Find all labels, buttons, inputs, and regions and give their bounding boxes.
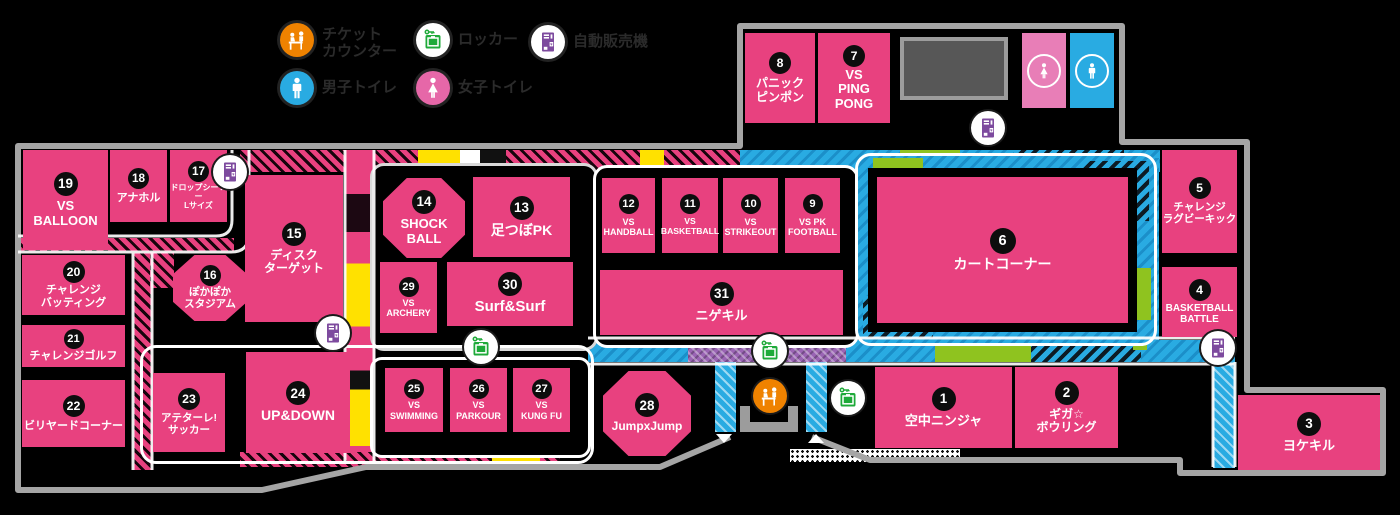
attraction-label: VS ARCHERY [386,298,430,318]
attraction-label: ニゲキル [695,309,747,324]
attraction-label: ディスク ターゲット [264,249,324,276]
attraction-box-25: 25VS SWIMMING [385,368,443,432]
attraction-number: 1 [932,387,956,411]
attraction-label: JumpxJump [612,420,683,433]
attraction-box-4: 4BASKETBALL BATTLE [1162,267,1237,337]
attraction-box-29: 29VS ARCHERY [380,262,437,333]
attraction-number: 2 [1055,381,1079,405]
ticket-counter-icon [280,23,314,57]
attraction-label: VS SWIMMING [390,400,438,420]
legend-item-vending: 自動販売機 [531,25,648,59]
attraction-box-27: 27VS KUNG FU [513,368,570,432]
attraction-box-28: 28JumpxJump [603,371,691,456]
legend-item-womens-toilet: 女子トイレ [416,71,533,105]
attraction-box-21: 21チャレンジゴルフ [22,325,125,367]
attraction-number: 4 [1189,279,1211,301]
map-vending-icon-1 [213,155,247,189]
attraction-box-26: 26VS PARKOUR [450,368,507,432]
attraction-label: 空中ニンジャ [905,414,982,429]
attraction-box-15: 15ディスク ターゲット [245,175,343,322]
attraction-label: チャレンジ ラグビーキック [1163,202,1237,226]
legend-item-locker: ロッカー [416,23,518,57]
attraction-label: 足つぼPK [491,223,552,239]
attraction-box-8: 8パニック ピンポン [745,33,815,123]
attraction-number: 29 [399,277,419,297]
attraction-box-31: 31ニゲキル [600,270,843,335]
vending-machine-icon [531,25,565,59]
map-vending-icon-3 [971,111,1005,145]
attraction-label: ギガ☆ ボウリング [1036,408,1096,435]
attraction-label: チャレンジゴルフ [30,350,118,362]
legend-label: 自動販売機 [573,25,648,50]
attraction-label: チャレンジ バッティング [41,284,106,309]
legend-label: ロッカー [458,23,518,48]
attraction-number: 20 [63,261,85,283]
legend-label: 男子トイレ [322,71,397,96]
deco-entrance-path-right [806,362,827,432]
screen-area [900,37,1008,100]
attraction-box-30: 30Surf&Surf [447,262,573,326]
attraction-label: VS PK FOOTBALL [788,217,837,237]
attraction-number: 24 [286,381,310,405]
attraction-number: 12 [619,194,639,214]
attraction-box-18: 18アナホル [110,150,167,222]
attraction-box-5: 5チャレンジ ラグビーキック [1162,150,1237,253]
attraction-label: VS BALLOON [33,199,97,228]
attraction-box-1: 1空中ニンジャ [875,367,1012,448]
entrance-up-arrow [808,434,824,443]
attraction-box-24: 24UP&DOWN [246,352,350,453]
attraction-box-16: 16ぽかぽか スタジアム [173,255,247,321]
attraction-number: 14 [412,190,436,214]
attraction-label: UP&DOWN [261,408,335,424]
map-vending-icon-2 [316,316,350,350]
attraction-label: ビリヤードコーナー [24,420,123,432]
attraction-label: BASKETBALL BATTLE [1166,303,1234,325]
deco-patch [150,252,174,288]
attraction-box-6: 6カートコーナー [868,168,1137,332]
attraction-number: 26 [469,379,489,399]
map-locker-icon-2 [831,381,865,415]
attraction-box-19: 19VS BALLOON [23,150,108,250]
attraction-number: 9 [803,194,823,214]
attraction-number: 21 [64,329,84,349]
womens-toilet-icon [1027,54,1061,88]
vs-park-floor-map: チケット カウンター ロッカー 自動販売機 男子トイレ 女子トイレ [0,0,1400,515]
legend-label: 女子トイレ [458,71,533,96]
attraction-number: 6 [990,228,1016,254]
attraction-number: 18 [128,168,149,189]
attraction-box-7: 7VS PING PONG [818,33,890,123]
attraction-number: 15 [282,222,306,246]
attraction-label: ヨケキル [1283,439,1335,454]
attraction-box-13: 13足つぼPK [473,177,570,257]
map-locker-icon-3 [464,330,498,364]
legend-label: チケット カウンター [322,23,397,61]
attraction-number: 23 [178,388,200,410]
mens-toilet-stall [1070,33,1114,108]
attraction-number: 13 [510,196,534,220]
attraction-number: 5 [1189,177,1211,199]
attraction-label: VS HANDBALL [604,217,654,237]
attraction-number: 27 [532,379,552,399]
map-vending-icon-4 [1201,331,1235,365]
womens-toilet-stall [1022,33,1066,108]
attraction-label: ぽかぽか スタジアム [184,287,236,311]
attraction-label: Surf&Surf [475,299,546,316]
attraction-number: 25 [404,379,424,399]
deco-path-right-vertical [1213,362,1235,468]
attraction-number: 3 [1297,412,1321,436]
attraction-number: 17 [188,161,209,182]
attraction-box-2: 2ギガ☆ ボウリング [1015,367,1118,448]
attraction-label: VS PING PONG [835,68,873,112]
attraction-box-20: 20チャレンジ バッティング [22,255,125,315]
attraction-label: SHOCK BALL [401,217,448,246]
attraction-label: アテターレ! サッカー [161,413,217,437]
attraction-number: 22 [63,395,85,417]
attraction-box-22: 22ビリヤードコーナー [22,380,125,447]
mens-toilet-icon [1075,54,1109,88]
attraction-box-14: 14SHOCK BALL [383,178,465,258]
attraction-box-11: 11VS BASKETBALL [662,178,718,253]
legend-item-mens-toilet: 男子トイレ [280,71,397,105]
deco-entrance-path-left [715,362,736,432]
attraction-number: 31 [710,282,734,306]
attraction-number: 11 [680,194,700,214]
attraction-label: パニック ピンポン [756,77,804,104]
womens-toilet-icon [416,71,450,105]
attraction-number: 28 [635,393,659,417]
locker-icon [416,23,450,57]
attraction-number: 19 [54,172,78,196]
attraction-box-12: 12VS HANDBALL [602,178,655,253]
attraction-box-23: 23アテターレ! サッカー [153,373,225,452]
attraction-label: アナホル [117,192,161,204]
attraction-label: VS KUNG FU [521,400,562,420]
attraction-number: 8 [769,52,791,74]
attraction-number: 7 [843,45,865,67]
map-ticket-counter-icon [753,379,787,413]
attraction-number: 10 [741,194,761,214]
deco-patch [790,449,960,462]
legend-item-ticket-counter: チケット カウンター [280,23,397,61]
map-locker-icon-1 [753,334,787,368]
attraction-box-3: 3ヨケキル [1238,395,1380,470]
mens-toilet-icon [280,71,314,105]
attraction-label: VS PARKOUR [456,400,501,420]
attraction-label: VS BASKETBALL [661,217,719,236]
attraction-box-9: 9VS PK FOOTBALL [785,178,840,253]
attraction-number: 16 [200,265,221,286]
attraction-label: VS STRIKEOUT [724,217,776,237]
attraction-number: 30 [498,272,522,296]
attraction-label: カートコーナー [954,257,1052,273]
attraction-box-10: 10VS STRIKEOUT [723,178,778,253]
entrance-down-arrow [716,434,732,443]
attraction-label: ドロップシーソー Lサイズ [170,184,227,211]
